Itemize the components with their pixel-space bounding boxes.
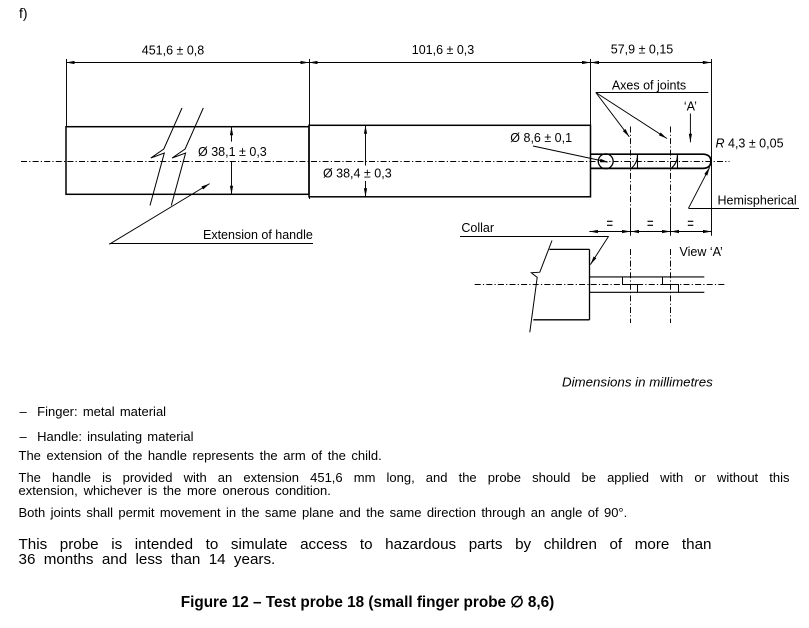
svg-text:Axes of joints: Axes of joints: [612, 79, 686, 93]
svg-text:Extension of handle: Extension of handle: [203, 228, 313, 242]
svg-text:57,9 ± 0,15: 57,9 ± 0,15: [611, 43, 674, 57]
svg-text:101,6 ± 0,3: 101,6 ± 0,3: [412, 43, 475, 57]
svg-text:Ø 38,4 ± 0,3: Ø 38,4 ± 0,3: [323, 167, 392, 181]
svg-text:Dimensions in millimetres: Dimensions in millimetres: [562, 375, 713, 390]
svg-text:R 4,3 ± 0,05: R 4,3 ± 0,05: [716, 137, 784, 151]
svg-text:View ‘A’: View ‘A’: [680, 245, 723, 259]
svg-text:Collar: Collar: [461, 221, 494, 235]
svg-text:f): f): [19, 5, 28, 21]
svg-text:451,6 ± 0,8: 451,6 ± 0,8: [142, 43, 205, 57]
svg-text:‘A’: ‘A’: [684, 100, 697, 114]
svg-text:Hemispherical: Hemispherical: [718, 194, 797, 208]
svg-text:Ø 38,1 ± 0,3: Ø 38,1 ± 0,3: [198, 145, 267, 159]
svg-text:Ø 8,6 ± 0,1: Ø 8,6 ± 0,1: [510, 131, 572, 145]
